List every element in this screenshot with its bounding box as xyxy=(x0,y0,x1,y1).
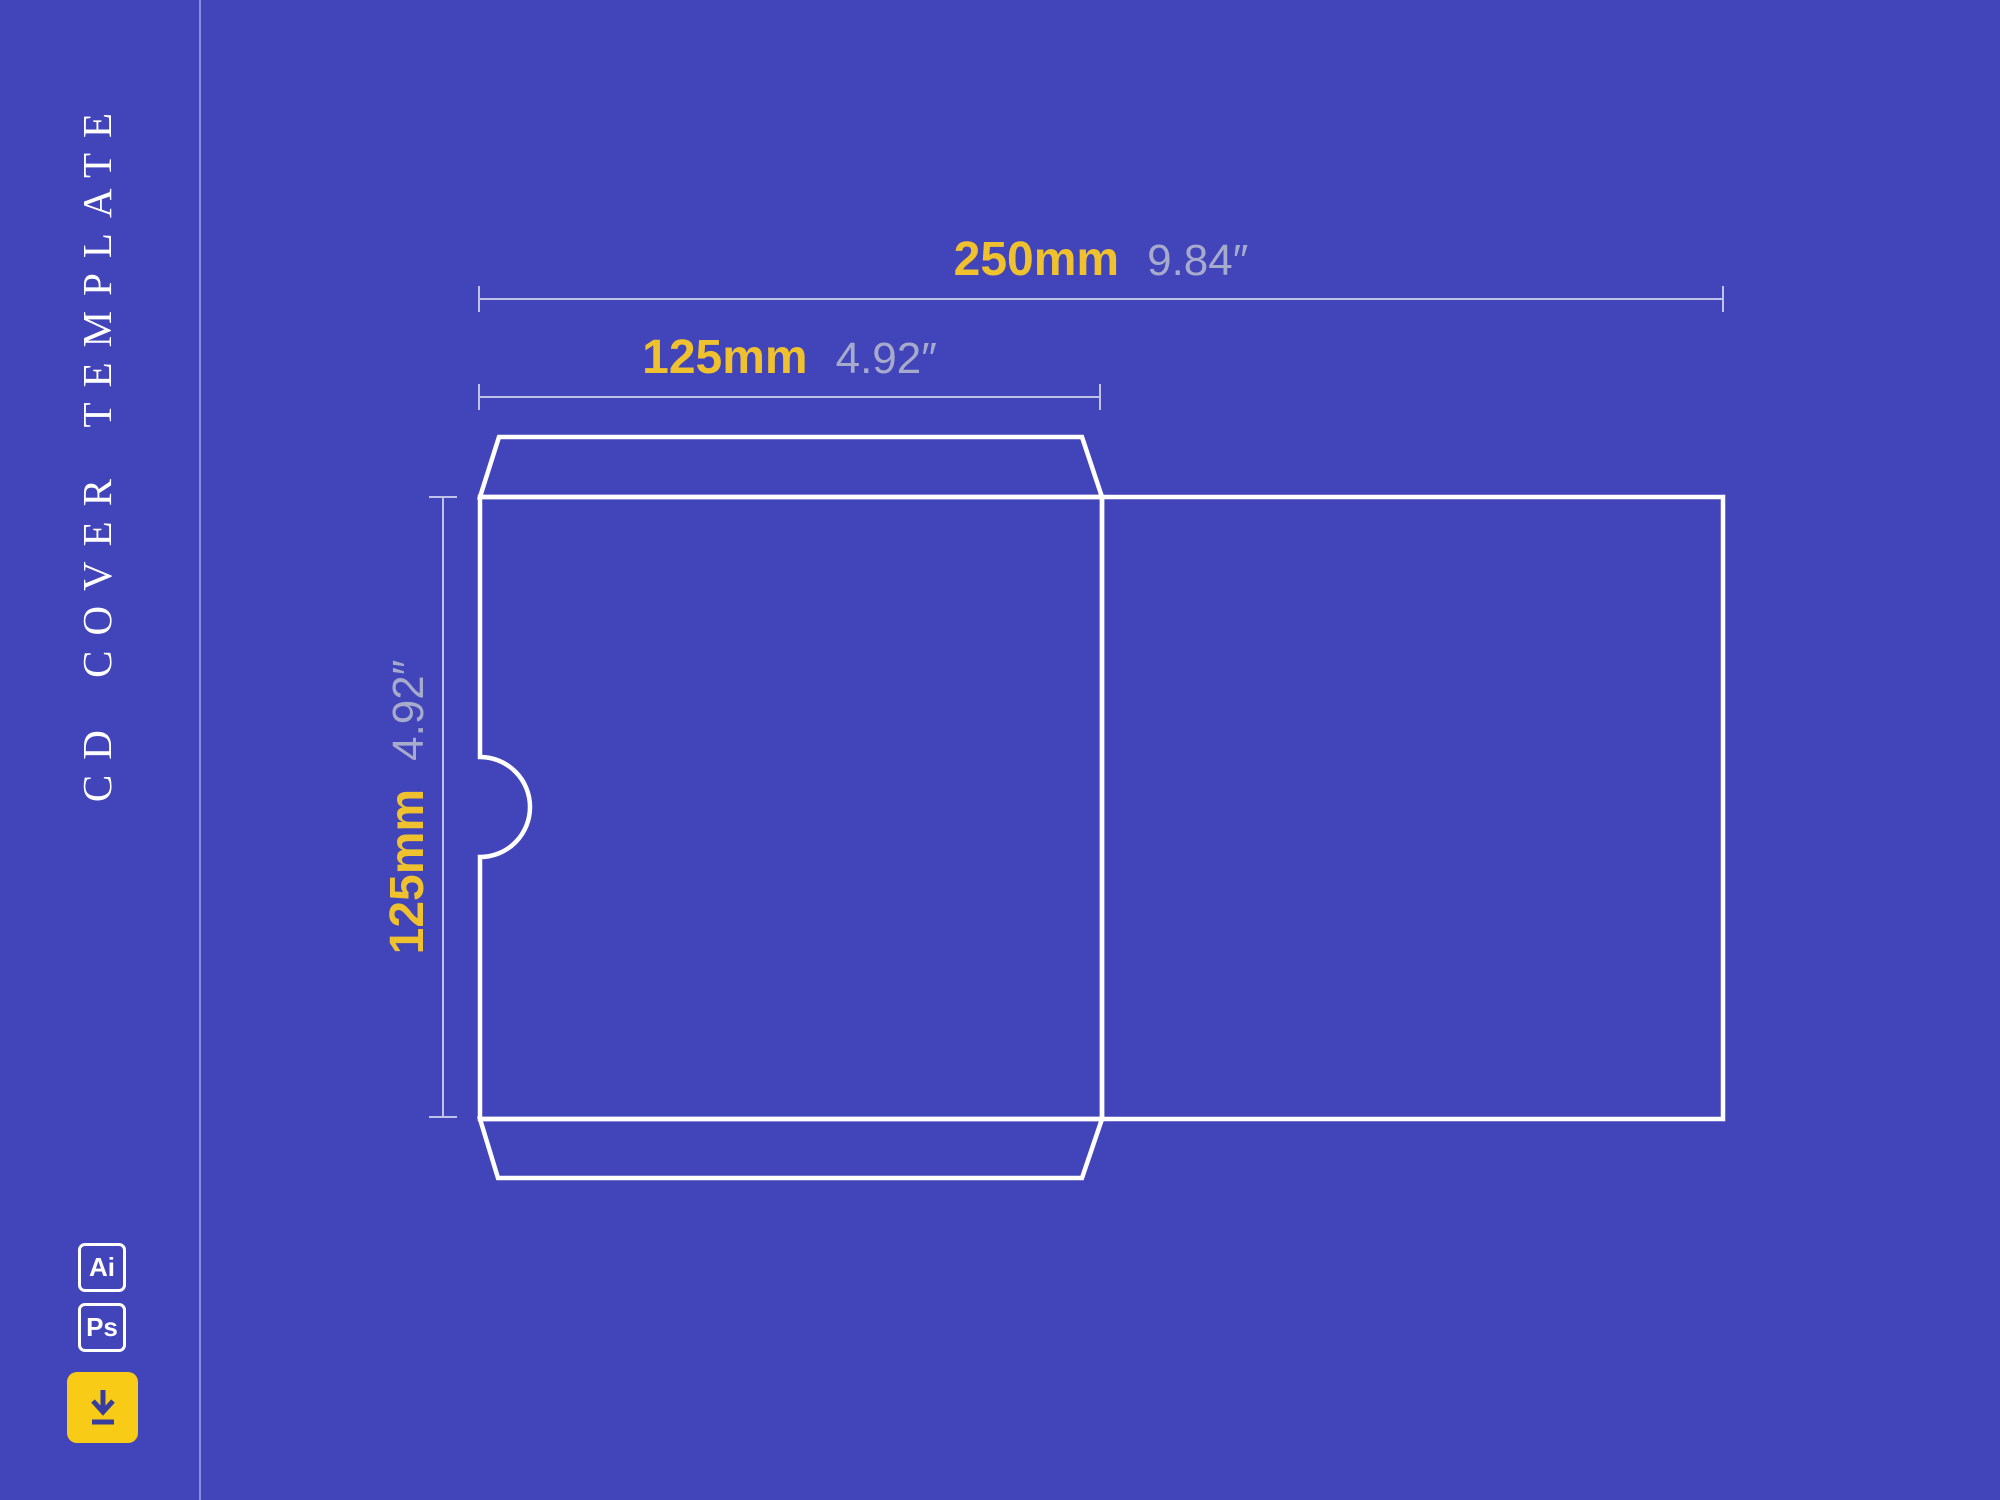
dimension-label-total-width: 250mm 9.84″ xyxy=(479,236,1723,288)
dimension-label-half-width: 125mm 4.92″ xyxy=(479,334,1100,386)
metric-unit: mm xyxy=(384,789,432,874)
page-canvas: CD COVER TEMPLATE 250mm 9.84″ 125mm 4.92… xyxy=(0,0,2000,1500)
badge-ps[interactable]: Ps xyxy=(78,1303,126,1352)
dieline-back-panel xyxy=(1102,497,1723,1119)
imperial-value: 4.92″ xyxy=(836,335,937,383)
imperial-value: 4.92″ xyxy=(385,660,433,761)
cd-cover-dieline xyxy=(0,0,2000,1500)
dieline-front-panel xyxy=(480,497,1102,1119)
dimension-label-height: 125mm 4.92″ xyxy=(384,497,436,1117)
dimension-line-total-width xyxy=(479,286,1723,312)
metric-unit: mm xyxy=(1034,236,1119,284)
badge-ai[interactable]: Ai xyxy=(78,1243,126,1292)
metric-unit: mm xyxy=(722,334,807,382)
dimension-line-half-width xyxy=(479,384,1100,410)
download-icon xyxy=(85,1387,121,1429)
metric-value: 250 xyxy=(954,236,1034,284)
metric-value: 125 xyxy=(384,874,432,954)
dieline-bottom-flap xyxy=(480,1119,1102,1178)
badge-ai-label: Ai xyxy=(89,1252,115,1283)
download-button[interactable] xyxy=(67,1372,138,1443)
imperial-value: 9.84″ xyxy=(1147,237,1248,285)
badge-ps-label: Ps xyxy=(86,1312,118,1343)
metric-value: 125 xyxy=(642,334,722,382)
dieline-top-flap xyxy=(480,437,1102,497)
